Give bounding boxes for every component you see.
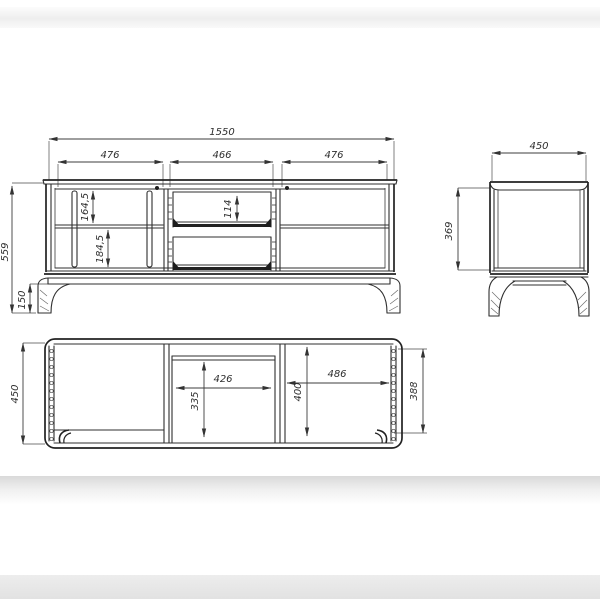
dim-front-height-total: 559 xyxy=(0,242,11,261)
dim-plan-depth: 450 xyxy=(10,384,21,403)
dim-side-body-height: 369 xyxy=(444,221,455,240)
dim-front-leg-height: 150 xyxy=(17,290,28,309)
dim-plan-right-width: 486 xyxy=(327,369,346,380)
plan-view-drawing: 450 426 335 486 400 388 xyxy=(10,339,427,448)
front-view-left-door xyxy=(55,191,163,267)
dim-plan-right-depth: 400 xyxy=(293,382,304,401)
side-view-cabinet-body xyxy=(490,182,588,277)
side-view-drawing: 450 369 xyxy=(444,141,589,316)
technical-drawing-canvas: 1550 476 466 476 559 150 164,5 184,5 114 xyxy=(0,0,600,599)
dim-front-opening-lower: 184,5 xyxy=(95,235,106,264)
dim-plan-middle-width: 426 xyxy=(213,374,232,385)
drawer-slide-ticks xyxy=(168,198,276,262)
plan-view-hinge-pins xyxy=(50,349,395,440)
dim-front-total-width: 1550 xyxy=(209,127,234,138)
dim-plan-inner-depth: 388 xyxy=(409,381,420,400)
front-view-legs xyxy=(38,278,400,313)
front-view-right-shelf xyxy=(280,225,389,228)
dim-plan-middle-depth: 335 xyxy=(190,391,201,410)
dim-front-drawer-opening: 114 xyxy=(223,199,234,218)
side-view-legs xyxy=(489,277,589,316)
front-view-drawers xyxy=(168,192,276,270)
furniture-dimension-drawing-page: { "dims": { "front": { "total_width": "1… xyxy=(0,0,600,599)
plan-view-right-door xyxy=(375,430,387,443)
plan-view-left-door xyxy=(54,430,164,443)
side-view-dimension-lines xyxy=(458,153,586,270)
dim-front-section-middle: 466 xyxy=(212,150,231,161)
plan-view-carcass xyxy=(45,339,402,448)
dim-front-opening-upper: 164,5 xyxy=(80,193,91,222)
front-view-drawing: 1550 476 466 476 559 150 164,5 184,5 114 xyxy=(0,127,400,313)
dim-front-section-left: 476 xyxy=(100,150,119,161)
plan-view-middle-compartment xyxy=(172,356,275,443)
dim-side-depth: 450 xyxy=(529,141,548,152)
plan-view-dimension-lines xyxy=(23,343,427,444)
dim-front-section-right: 476 xyxy=(324,150,343,161)
